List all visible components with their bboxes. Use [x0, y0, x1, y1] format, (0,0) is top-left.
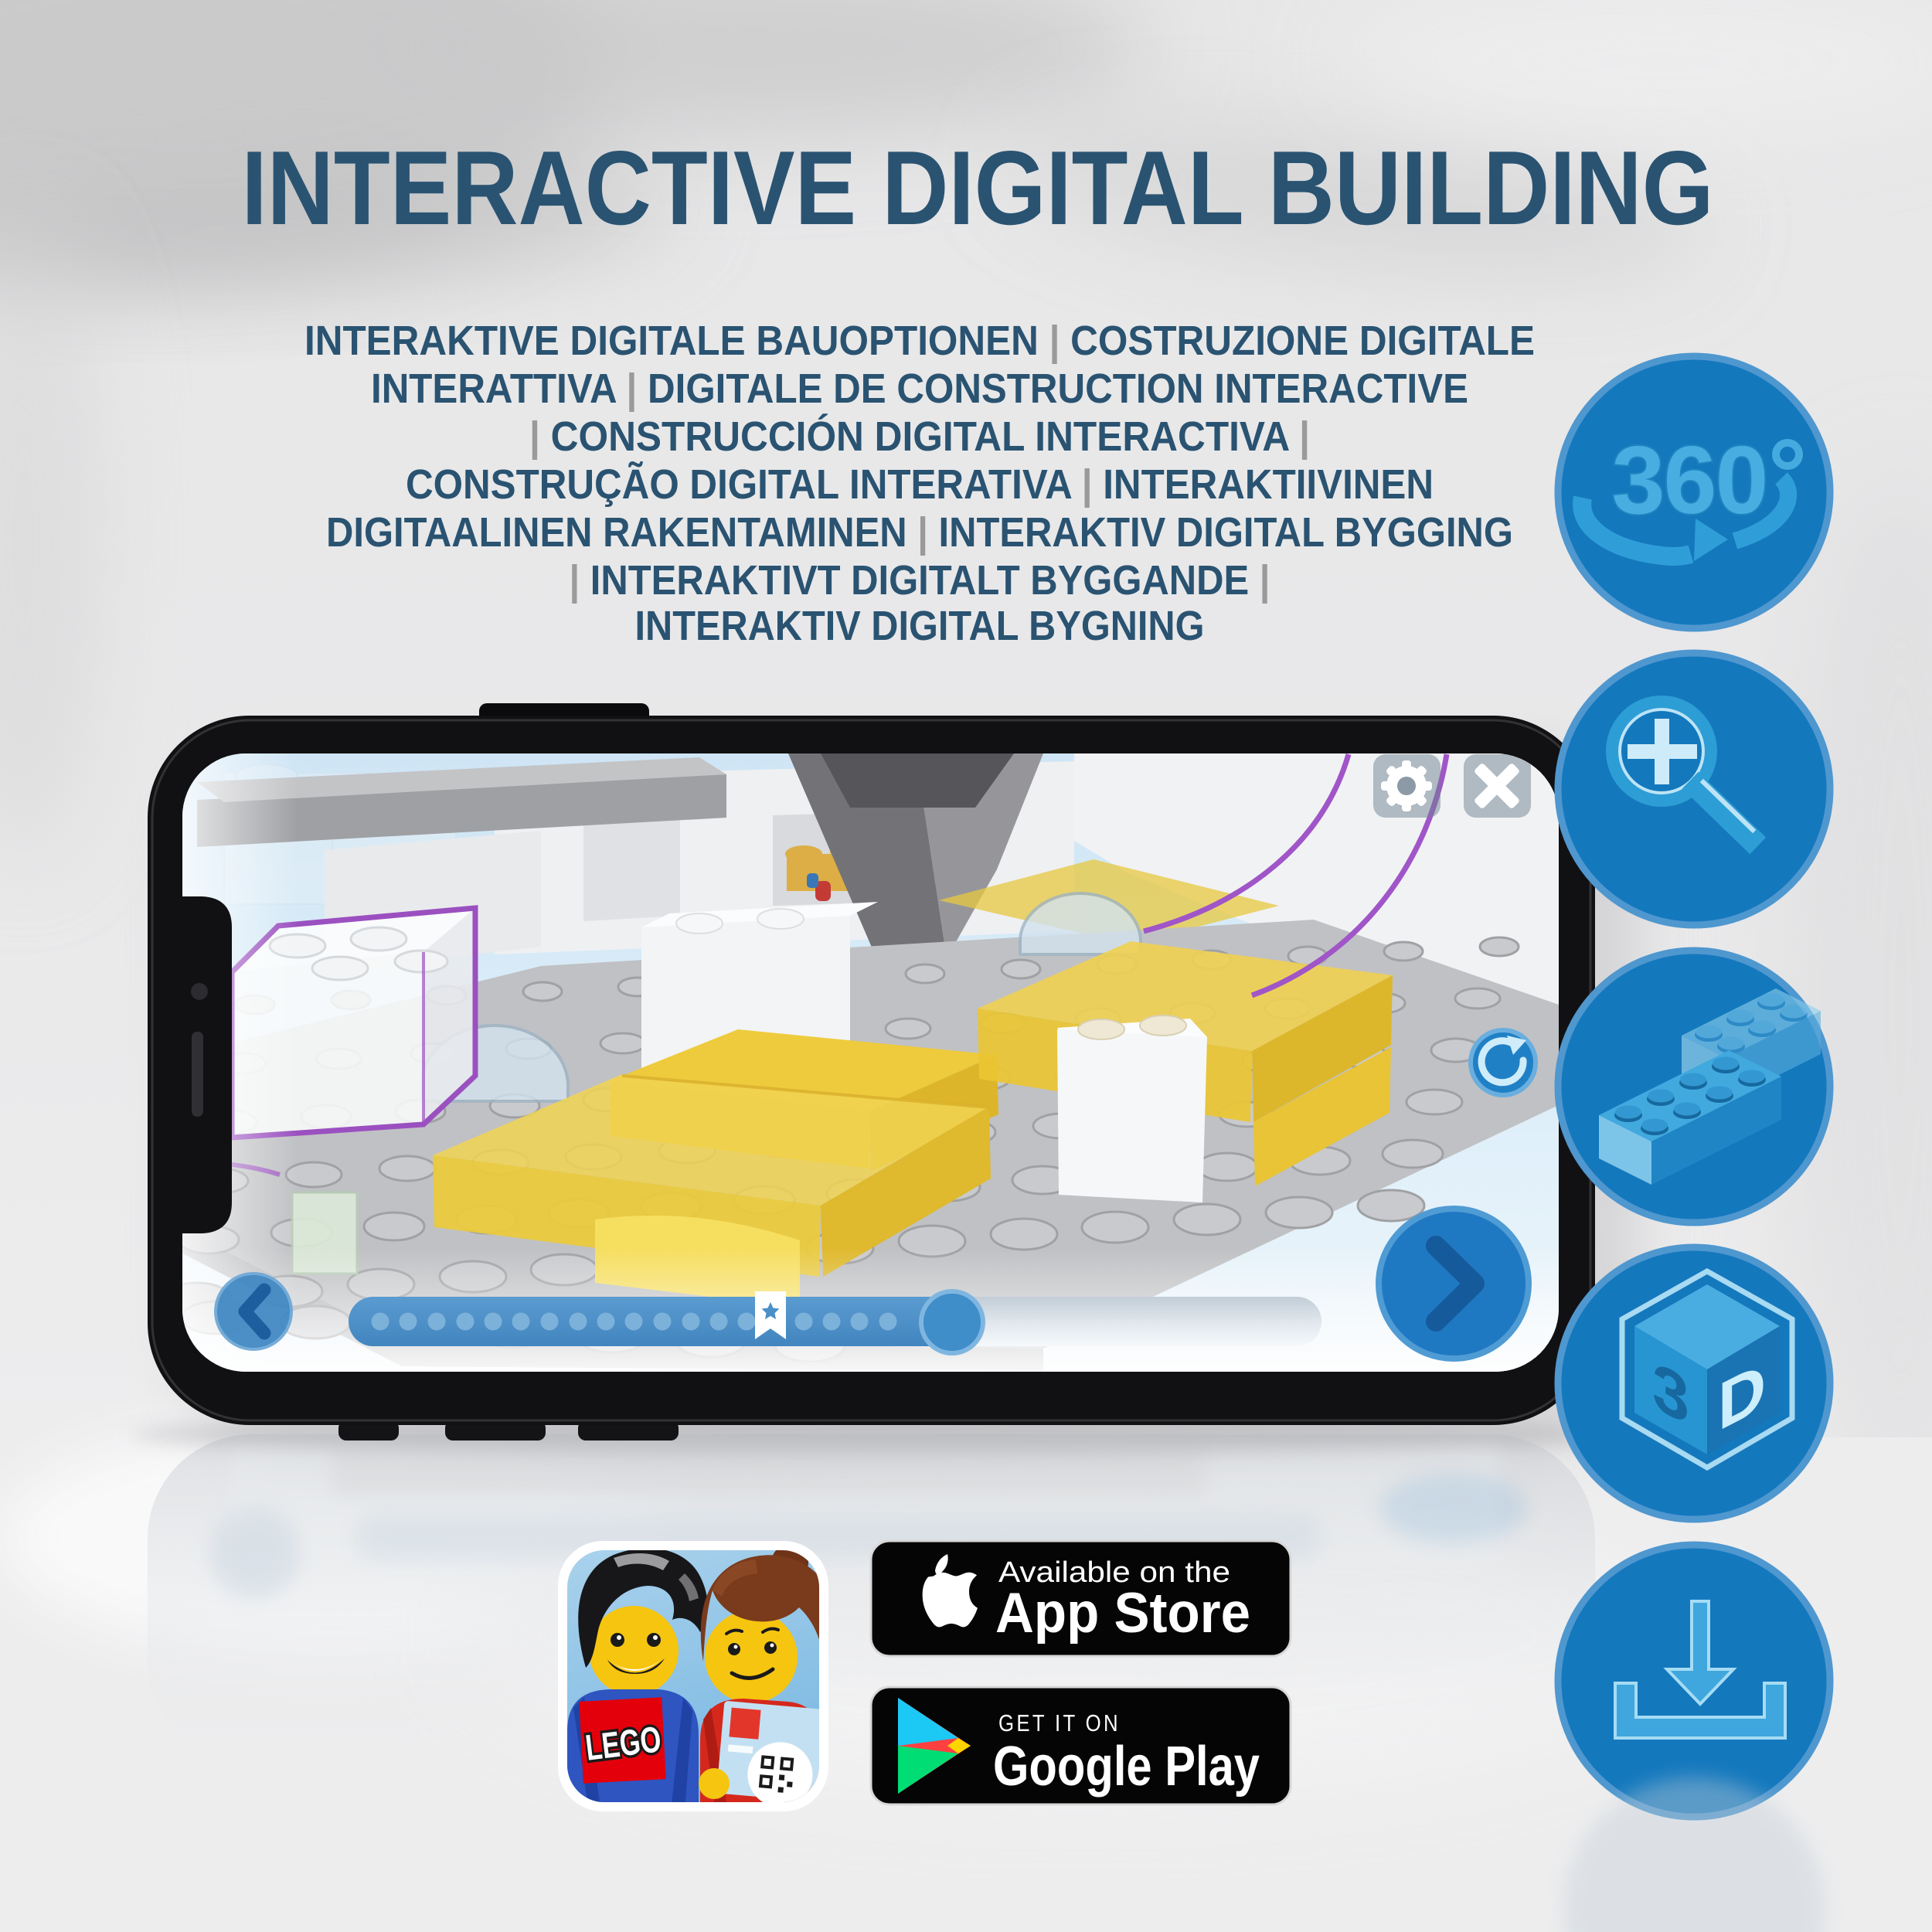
svg-text:INTERACTIVE DIGITAL BUILDING: INTERACTIVE DIGITAL BUILDING [242, 129, 1714, 247]
svg-text:360: 360 [1612, 427, 1767, 534]
svg-text:| INTERAKTIVT DIGITALT BYGGAND: | INTERAKTIVT DIGITALT BYGGANDE | [570, 557, 1270, 604]
svg-text:GET IT ON: GET IT ON [998, 1709, 1121, 1736]
svg-text:Google Play: Google Play [993, 1736, 1260, 1798]
svg-text:DIGITAALINEN RAKENTAMINEN | IN: DIGITAALINEN RAKENTAMINEN | INTERAKTIV D… [326, 509, 1513, 556]
svg-text:INTERAKTIV DIGITAL BYGNING: INTERAKTIV DIGITAL BYGNING [635, 603, 1205, 649]
svg-text:| CONSTRUCCIÓN DIGITAL INTERAC: | CONSTRUCCIÓN DIGITAL INTERACTIVA | [529, 413, 1310, 461]
svg-text:App Store: App Store [995, 1582, 1250, 1645]
svg-text:INTERAKTIVE DIGITALE BAUOPTION: INTERAKTIVE DIGITALE BAUOPTIONEN | COSTR… [304, 318, 1535, 365]
svg-text:INTERATTIVA | DIGITALE DE CONS: INTERATTIVA | DIGITALE DE CONSTRUCTION I… [371, 366, 1468, 413]
svg-text:CONSTRUÇÃO DIGITAL INTERATIVA: CONSTRUÇÃO DIGITAL INTERATIVA | INTERAKT… [406, 461, 1434, 509]
